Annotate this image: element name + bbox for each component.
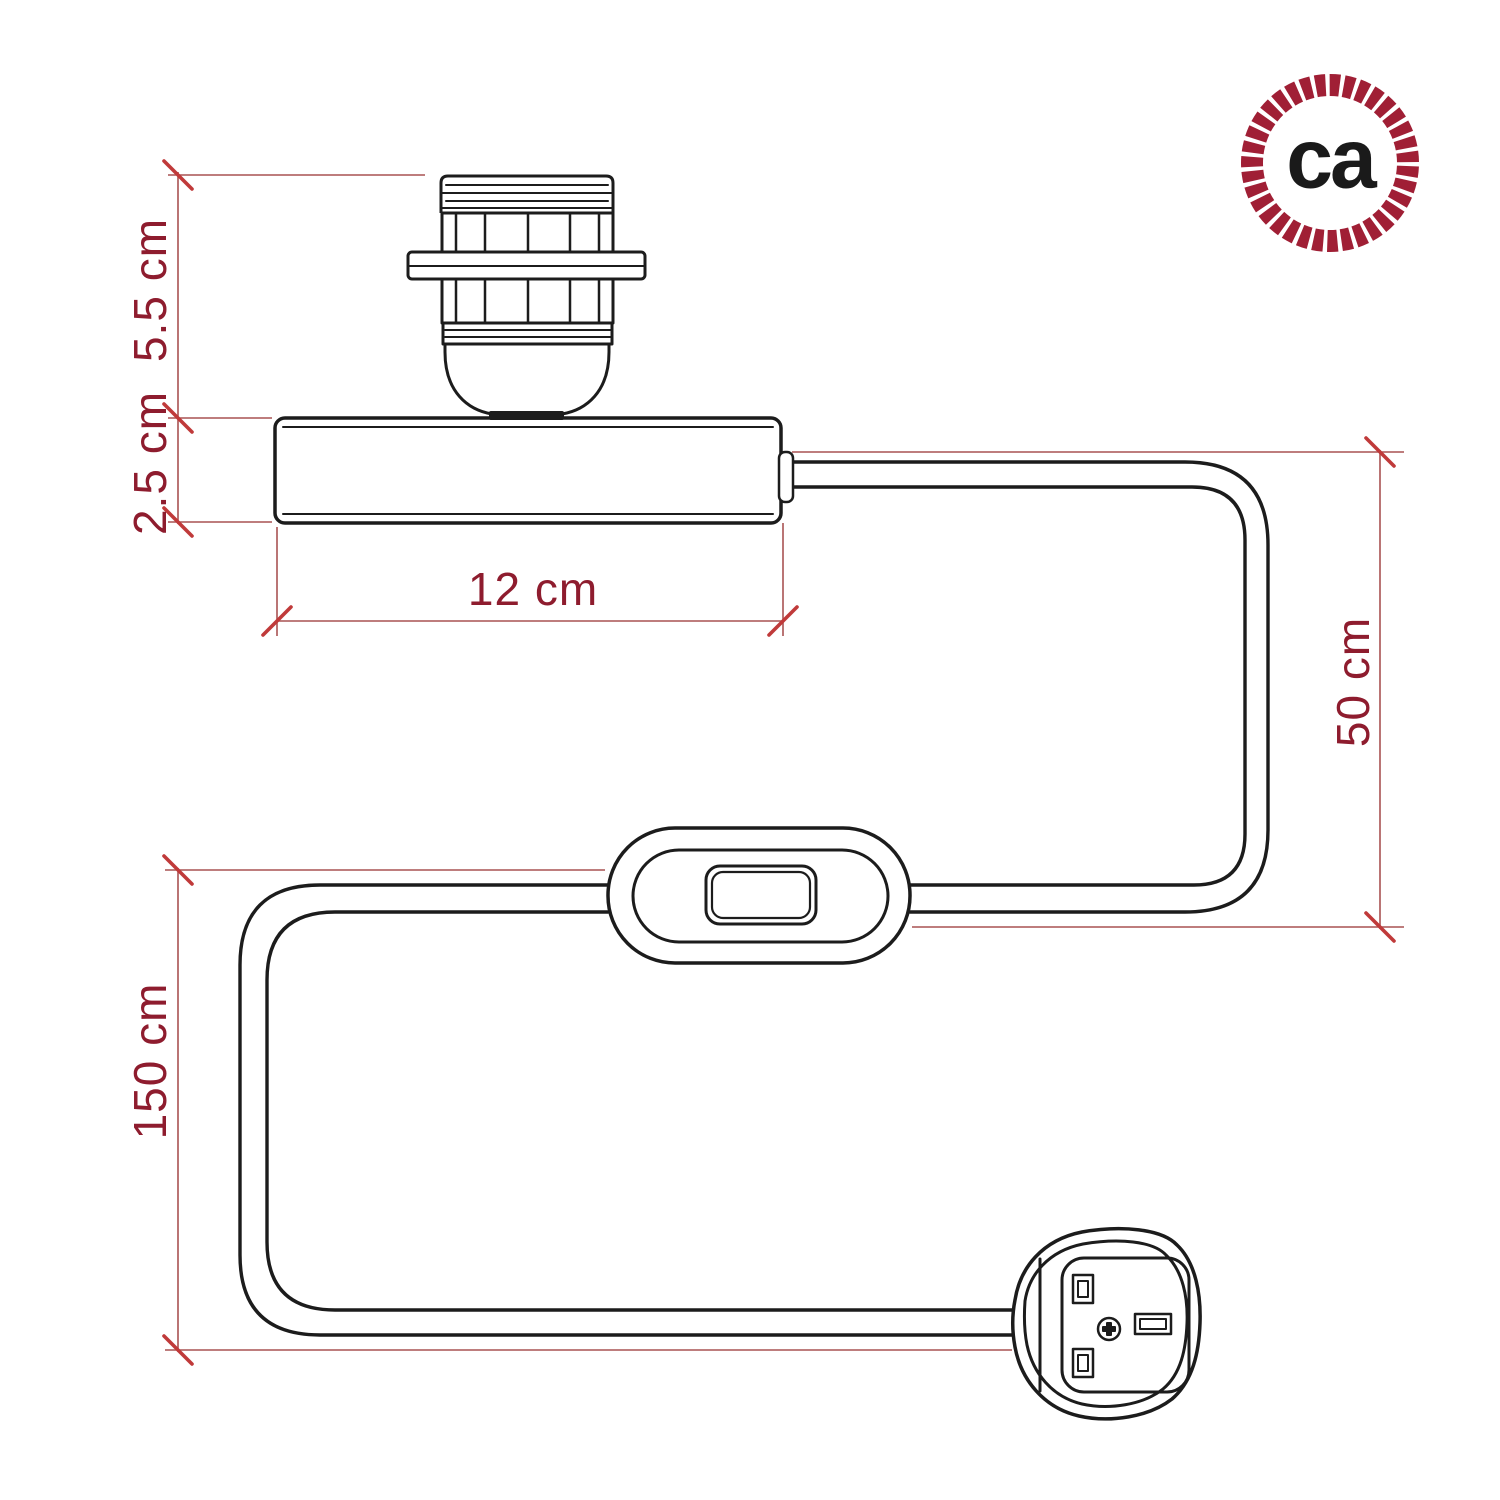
brand-logo: ca	[1235, 68, 1425, 258]
diagram-canvas: 5.5 cm 2.5 cm 12 cm 50 cm 150 cm ca	[0, 0, 1500, 1500]
dimension-lines	[164, 161, 1404, 1364]
dimension-label-base-height: 2.5 cm	[123, 391, 177, 535]
inline-switch	[608, 828, 910, 963]
dimension-label-socket-height: 5.5 cm	[123, 218, 177, 362]
cable-gland	[779, 452, 793, 502]
holder-neck	[489, 411, 564, 420]
dimension-label-cable-to-plug: 150 cm	[123, 983, 177, 1140]
lamp-base	[275, 418, 793, 523]
brand-logo-text: ca	[1286, 111, 1373, 208]
live-pin-slot	[1073, 1349, 1093, 1377]
uk-plug	[1013, 1229, 1200, 1419]
dimension-label-base-length: 12 cm	[468, 562, 598, 616]
dimension-label-cable-to-switch: 50 cm	[1326, 617, 1380, 747]
lamp-holder	[408, 176, 645, 420]
rocker-button	[706, 866, 816, 924]
neutral-pin-slot	[1073, 1275, 1093, 1303]
